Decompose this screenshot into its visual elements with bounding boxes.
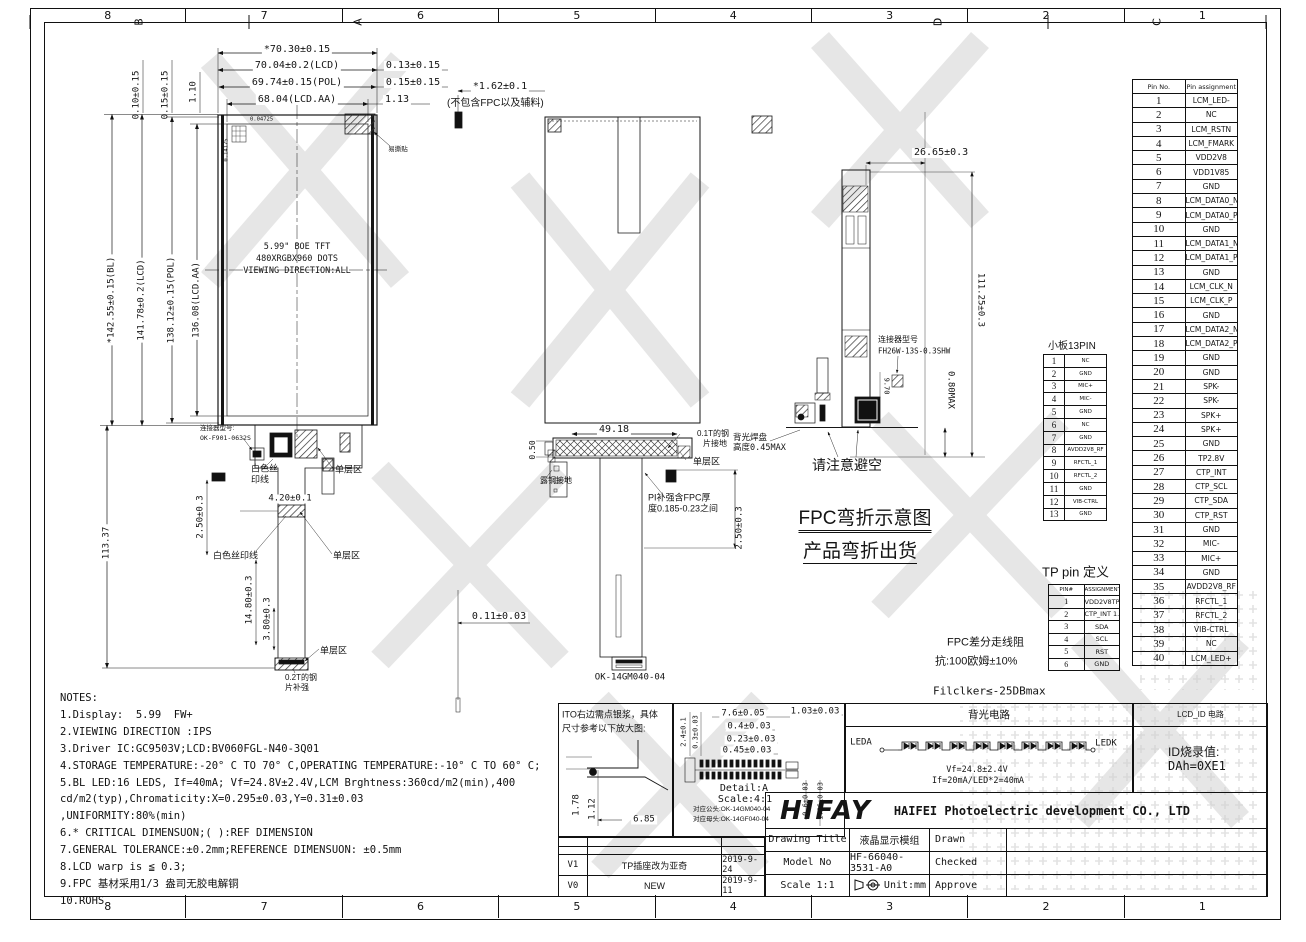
pin-row: 2 NC: [1133, 108, 1238, 122]
tp-row: 3 SDA: [1049, 621, 1120, 634]
dim-gap-2: 0.15±0.15: [384, 78, 442, 88]
note-line: 8.LCD warp is ≦ 0.3;: [60, 859, 540, 876]
pin-row: 6 VDD1V85: [1133, 165, 1238, 179]
revision-description: NEW: [588, 876, 722, 897]
pin-row: 18 LCM_DATA2_P: [1133, 337, 1238, 351]
pin-row: 29 CTP_SDA: [1133, 494, 1238, 508]
pin-row: 37 RFCTL_2: [1133, 608, 1238, 622]
small-board-title: 小板13PIN: [1048, 342, 1096, 352]
note-line: 4.STORAGE TEMPERATURE:-20° C TO 70° C,OP…: [60, 758, 540, 775]
tp-table-title: TP pin 定义: [1042, 566, 1109, 579]
pixel-pitch-h: 0.04725: [250, 117, 273, 123]
note-line: cd/m2(typ),Chromaticity:X=0.295±0.03,Y=0…: [60, 791, 540, 808]
pin-row: 25 GND: [1133, 437, 1238, 451]
white-silk-label-1a: 白色丝: [251, 465, 278, 474]
model-no-label: Model No: [766, 851, 849, 874]
section-connector-label: OK-14GM040-04: [595, 674, 665, 683]
id-burn-value-line1: ID烧录值:: [1168, 746, 1219, 758]
note-line: 5.BL LED:16 LEDS, If=40mA; Vf=24.8V±2.4V…: [60, 775, 540, 792]
pin-row: 22 SPK-: [1133, 394, 1238, 408]
detail-dim-v1: 2.4±0.1: [681, 717, 688, 747]
scale-label: Scale 1:1: [766, 874, 849, 897]
front-view-linework: [100, 48, 448, 673]
pin-row: 21 SPK-: [1133, 379, 1238, 393]
dim-height-bl: *142.55±0.15(BL): [108, 255, 117, 346]
pin-assign-header: Pin assignment: [1185, 80, 1238, 94]
dim-section-width: 49.18: [597, 425, 631, 435]
company-name: HAIFEI Photoelectric development CO., LT…: [894, 804, 1190, 818]
pin-row: 27 CTP_INT: [1133, 465, 1238, 479]
dim-width-pol: 69.74±0.15(POL): [250, 78, 344, 88]
dim-height-lcd: 141.78±0.2(LCD): [138, 257, 147, 342]
led-cathode-label: LEDK: [1095, 740, 1117, 749]
revision-row: V0 NEW 2019-9-11: [559, 876, 765, 897]
detail-dim-2: 0.4±0.03: [725, 723, 772, 732]
dim-offset-1: 0.10±0.15: [133, 71, 142, 120]
small-board-row: 9 RFCTL_1: [1044, 457, 1107, 470]
pin-row: 28 CTP_SCL: [1133, 480, 1238, 494]
white-silk-label-1b: 印线: [251, 476, 269, 485]
tp-pin-table: PIN# ASSIGNMENT 1 VDD2V8TP 2 CTP_INT 1.8…: [1048, 584, 1120, 671]
first-angle-projection-icon: [853, 878, 881, 892]
dim-silk-offset: 2.50±0.3: [197, 495, 206, 538]
small-board-row: 13 GND: [1044, 508, 1107, 521]
pin-row: 39 NC: [1133, 637, 1238, 651]
note-line: ,UNIFORMITY:80%(min): [60, 808, 540, 825]
dim-tail-1: 14.80±0.3: [246, 574, 255, 627]
avoid-clearance-note: 请注意避空: [812, 458, 882, 472]
pin-row: 19 GND: [1133, 351, 1238, 365]
detail-female-connector-note: 对应母头:OK-14GF040-04: [693, 817, 769, 824]
single-layer-label-2: 单层区: [333, 552, 360, 561]
pixel-pitch-v: 0.14175: [224, 138, 230, 161]
small-board-row: 3 MIC+: [1044, 380, 1107, 393]
dim-section-left: 0.50: [529, 440, 537, 459]
backlight-pad-line1: 背光焊盘: [733, 433, 767, 442]
backlight-panel-title: 背光电路: [846, 704, 1132, 727]
pin-table-header: Pin No. Pin assignment: [1133, 80, 1238, 94]
detail-title: Detail:A: [720, 784, 768, 794]
pin-row: 20 GND: [1133, 365, 1238, 379]
dim-offset-2: 0.15±0.15: [162, 71, 171, 120]
pin-row: 13 GND: [1133, 265, 1238, 279]
tp-row: 2 CTP_INT 1.8V: [1049, 608, 1120, 621]
note-line: 1.Display: 5.99 FW+: [60, 707, 540, 724]
notes-block: NOTES: 1.Display: 5.99 FW+2.VIEWING DIRE…: [60, 690, 540, 910]
dim-width-total: *70.30±0.15: [262, 45, 332, 55]
dim-thickness: *1.62±0.1: [471, 82, 529, 92]
approve-label: Approve: [929, 874, 1006, 897]
detail-dim-1: 7.6±0.05: [719, 710, 766, 719]
steel-gnd-line1: 0.1T的钢: [697, 430, 729, 438]
approve-value: [1006, 874, 1267, 897]
flicker-note: Filclker≤-25DBmax: [933, 686, 1046, 697]
impedance-note-line1: FPC差分走线阻: [947, 638, 1024, 649]
single-layer-label-3: 单层区: [320, 647, 347, 656]
dim-height-aa: 136.08(LCD.AA): [193, 260, 202, 340]
drawn-value: [1006, 828, 1267, 851]
revision-date: 2019-9-11: [722, 876, 765, 897]
pin-no-header: Pin No.: [1133, 80, 1186, 94]
pin-row: 15 LCM_CLK_P: [1133, 294, 1238, 308]
note-line: 9.FPC 基材采用1/3 盎司无胶电解铜: [60, 876, 540, 893]
impedance-note-line2: 抗:100欧姆±10%: [935, 657, 1017, 668]
tp-assign-header: ASSIGNMENT: [1084, 585, 1120, 596]
steel-gnd-line2: 片接地: [703, 440, 727, 448]
revision-id: V0: [559, 876, 588, 897]
revision-row: V1 TP插座改为亚奇 2019-9-24: [559, 855, 765, 876]
detail-dim-4: 0.45±0.03: [721, 747, 774, 756]
small-board-row: 5 GND: [1044, 406, 1107, 419]
unit-label: Unit:mm: [884, 880, 926, 891]
note-line: 3.Driver IC:GC9503V;LCD:BV060FGL-N40-3Q0…: [60, 741, 540, 758]
pin-row: 30 CTP_RST: [1133, 508, 1238, 522]
pi-note-line1: PI补强含FPC厚: [648, 494, 711, 503]
small-board-pin-table: 1 NC 2 GND 3 MIC+ 4 MIC- 5 GND 6 NC 7 GN…: [1043, 354, 1107, 521]
backlight-vf-value: Vf=24.8±2.4V: [946, 766, 1007, 775]
engineering-drawing-sheet: 87654321 87654321 DCBA DCBA: [0, 0, 1306, 942]
detail-dim-5: 1.03±0.03: [789, 708, 842, 717]
dim-side-height: 111.25±0.3: [976, 271, 985, 329]
dim-height-fpc: 113.37: [103, 525, 112, 562]
company-logo: HIFAY: [780, 796, 872, 826]
dim-side-connector: 9.70: [883, 378, 890, 395]
dim-tail-2: 3.80±0.3: [264, 595, 273, 642]
pin-row: 35 AVDD2V8_RF: [1133, 580, 1238, 594]
lcd-id-panel-title: LCD_ID 电路: [1134, 704, 1267, 727]
tp-row: 1 VDD2V8TP: [1049, 596, 1120, 609]
dim-gap-3: 1.13: [383, 95, 411, 105]
copper-gnd-label: 露铜接地: [540, 477, 572, 485]
detail-dim-v2: 0.3±0.03: [693, 715, 700, 749]
pin-row: 36 RFCTL_1: [1133, 594, 1238, 608]
drawing-title-value: 液晶显示模组: [849, 828, 929, 851]
ito-dim-3: 6.85: [631, 816, 657, 825]
pin-row: 40 LCM_LED+: [1133, 651, 1238, 665]
small-board-row: 1 NC: [1044, 355, 1107, 368]
pin-row: 14 LCM_CLK_N: [1133, 279, 1238, 293]
pin-row: 9 LCM_DATA0_P: [1133, 208, 1238, 222]
pin-row: 8 LCM_DATA0_N: [1133, 194, 1238, 208]
title-block-logo-row: HIFAY HAIFEI Photoelectric development C…: [766, 793, 1267, 828]
side-connector-label-line2: FH26W-13S-0.3SHW: [878, 347, 950, 355]
dim-side-top: 26.65±0.3: [912, 148, 970, 158]
single-layer-label-1: 单层区: [335, 466, 362, 475]
pin-row: 31 GND: [1133, 522, 1238, 536]
note-line: 7.GENERAL TOLERANCE:±0.2mm;REFERENCE DIM…: [60, 842, 540, 859]
white-silk-label-2: 白色丝印线: [213, 552, 258, 561]
dim-offset-3: 1.10: [190, 81, 199, 103]
pin-row: 32 MIC-: [1133, 537, 1238, 551]
pin-row: 1 LCM_LED-: [1133, 94, 1238, 108]
panel-desc-line1: 5.99" BOE TFT: [264, 243, 331, 252]
title-block: HIFAY HAIFEI Photoelectric development C…: [765, 792, 1268, 897]
dim-section-right: 2.50±0.3: [736, 504, 745, 551]
drawn-label: Drawn: [929, 828, 1006, 851]
detail-scale: Scale:4:1: [718, 795, 772, 805]
dim-band-width: 4.20±0.1: [266, 495, 313, 504]
unit-cell: Unit:mm: [849, 874, 929, 897]
pin-row: 38 VIB-CTRL: [1133, 622, 1238, 636]
small-board-row: 6 NC: [1044, 418, 1107, 431]
drawing-title-label: Drawing Title: [766, 828, 849, 851]
tp-no-header: PIN#: [1049, 585, 1085, 596]
dim-section-bottom: 0.11±0.03: [470, 612, 528, 622]
ito-note-line2: 尺寸参考以下放大图:: [562, 725, 646, 734]
bend-title-2: 产品弯折出货: [803, 542, 917, 564]
id-burn-value-line2: DAh=0XE1: [1168, 760, 1226, 772]
backlight-pad-line2: 高度0.45MAX: [733, 444, 786, 453]
small-board-row: 2 GND: [1044, 367, 1107, 380]
pin-row: 5 VDD2V8: [1133, 151, 1238, 165]
led-anode-label: LEDA: [850, 739, 872, 748]
note-line: 6.* CRITICAL DIMENSUON;( ):REF DIMENSION: [60, 825, 540, 842]
detail-dim-3: 0.23±0.03: [725, 736, 778, 745]
pi-note-line2: 度0.185-0.23之间: [648, 505, 718, 514]
ito-dim-1: 1.78: [573, 794, 582, 816]
pin-row: 3 LCM_RSTN: [1133, 122, 1238, 136]
bend-title-1: FPC弯折示意图: [798, 509, 931, 533]
tp-table-header: PIN# ASSIGNMENT: [1049, 585, 1120, 596]
small-board-row: 4 MIC-: [1044, 393, 1107, 406]
tp-row: 6 GND: [1049, 658, 1120, 671]
dim-gap-1: 0.13±0.15: [384, 61, 442, 71]
fpc-connector-label-line1: 连接器型号:: [200, 426, 234, 433]
small-board-row: 10 RFCTL_2: [1044, 470, 1107, 483]
revision-date: 2019-9-24: [722, 855, 765, 876]
steel-stiffener-line1: 0.2T的钢: [285, 674, 317, 682]
dim-width-aa: 68.04(LCD.AA): [256, 95, 338, 105]
pin-row: 24 SPK+: [1133, 422, 1238, 436]
small-board-row: 7 GND: [1044, 431, 1107, 444]
detail-male-connector-note: 对应公头:OK-14GM040-04: [693, 807, 770, 814]
side-connector-label-line1: 连接器型号: [878, 336, 918, 344]
pin-row: 7 GND: [1133, 179, 1238, 193]
small-board-row: 12 VIB-CTRL: [1044, 495, 1107, 508]
small-board-row: 11 GND: [1044, 482, 1107, 495]
pin-row: 12 LCM_DATA1_P: [1133, 251, 1238, 265]
small-board-row: 8 AVDD2V8_RF: [1044, 444, 1107, 457]
ito-dim-2: 1.12: [589, 798, 598, 820]
pin-row: 17 LCM_DATA2_N: [1133, 322, 1238, 336]
revision-id: V1: [559, 855, 588, 876]
pin-row: 16 GND: [1133, 308, 1238, 322]
panel-desc-line3: VIEWING DIRECTION:ALL: [243, 267, 350, 276]
revision-description: TP插座改为亚奇: [588, 855, 722, 876]
note-line: 10.ROHS: [60, 893, 540, 910]
checked-label: Checked: [929, 851, 1006, 874]
notes-title: NOTES:: [60, 690, 540, 707]
pin-row: 11 LCM_DATA1_N: [1133, 236, 1238, 250]
fpc-connector-label-line2: OK-F901-0632S: [200, 435, 251, 442]
dim-height-pol: 138.12±0.15(POL): [168, 255, 177, 346]
pin-row: 10 GND: [1133, 222, 1238, 236]
revision-row-empty: [559, 847, 765, 856]
note-line: 2.VIEWING DIRECTION :IPS: [60, 724, 540, 741]
revision-row-empty: [559, 838, 765, 847]
pin-row: 34 GND: [1133, 565, 1238, 579]
ito-note-line1: ITO右边需点银浆，具体: [562, 711, 658, 720]
backlight-if-value: If=20mA/LED*2=40mA: [932, 777, 1024, 786]
thickness-note: (不包含FPC以及辅料): [447, 99, 544, 109]
tp-row: 5 RST: [1049, 646, 1120, 659]
pin-assignment-table: Pin No. Pin assignment 1 LCM_LED- 2 NC 3…: [1132, 79, 1238, 666]
pin-row: 23 SPK+: [1133, 408, 1238, 422]
checked-value: [1006, 851, 1267, 874]
single-layer-section: 单层区: [693, 458, 720, 467]
dim-width-lcd: 70.04±0.2(LCD): [253, 61, 341, 71]
dim-side-max: 0.80MAX: [946, 369, 955, 411]
pin-row: 33 MIC+: [1133, 551, 1238, 565]
pin-row: 4 LCM_FMARK: [1133, 136, 1238, 150]
revision-table: V1 TP插座改为亚奇 2019-9-24 V0 NEW 2019-9-11: [558, 837, 765, 897]
pin-row: 26 TP2.8V: [1133, 451, 1238, 465]
model-no-value: HF-66040-3531-A0: [849, 851, 929, 874]
tp-row: 4 SCL: [1049, 633, 1120, 646]
tear-sticker-label: 易撕贴: [388, 147, 408, 154]
panel-desc-line2: 480XRGBX960 DOTS: [256, 255, 338, 264]
